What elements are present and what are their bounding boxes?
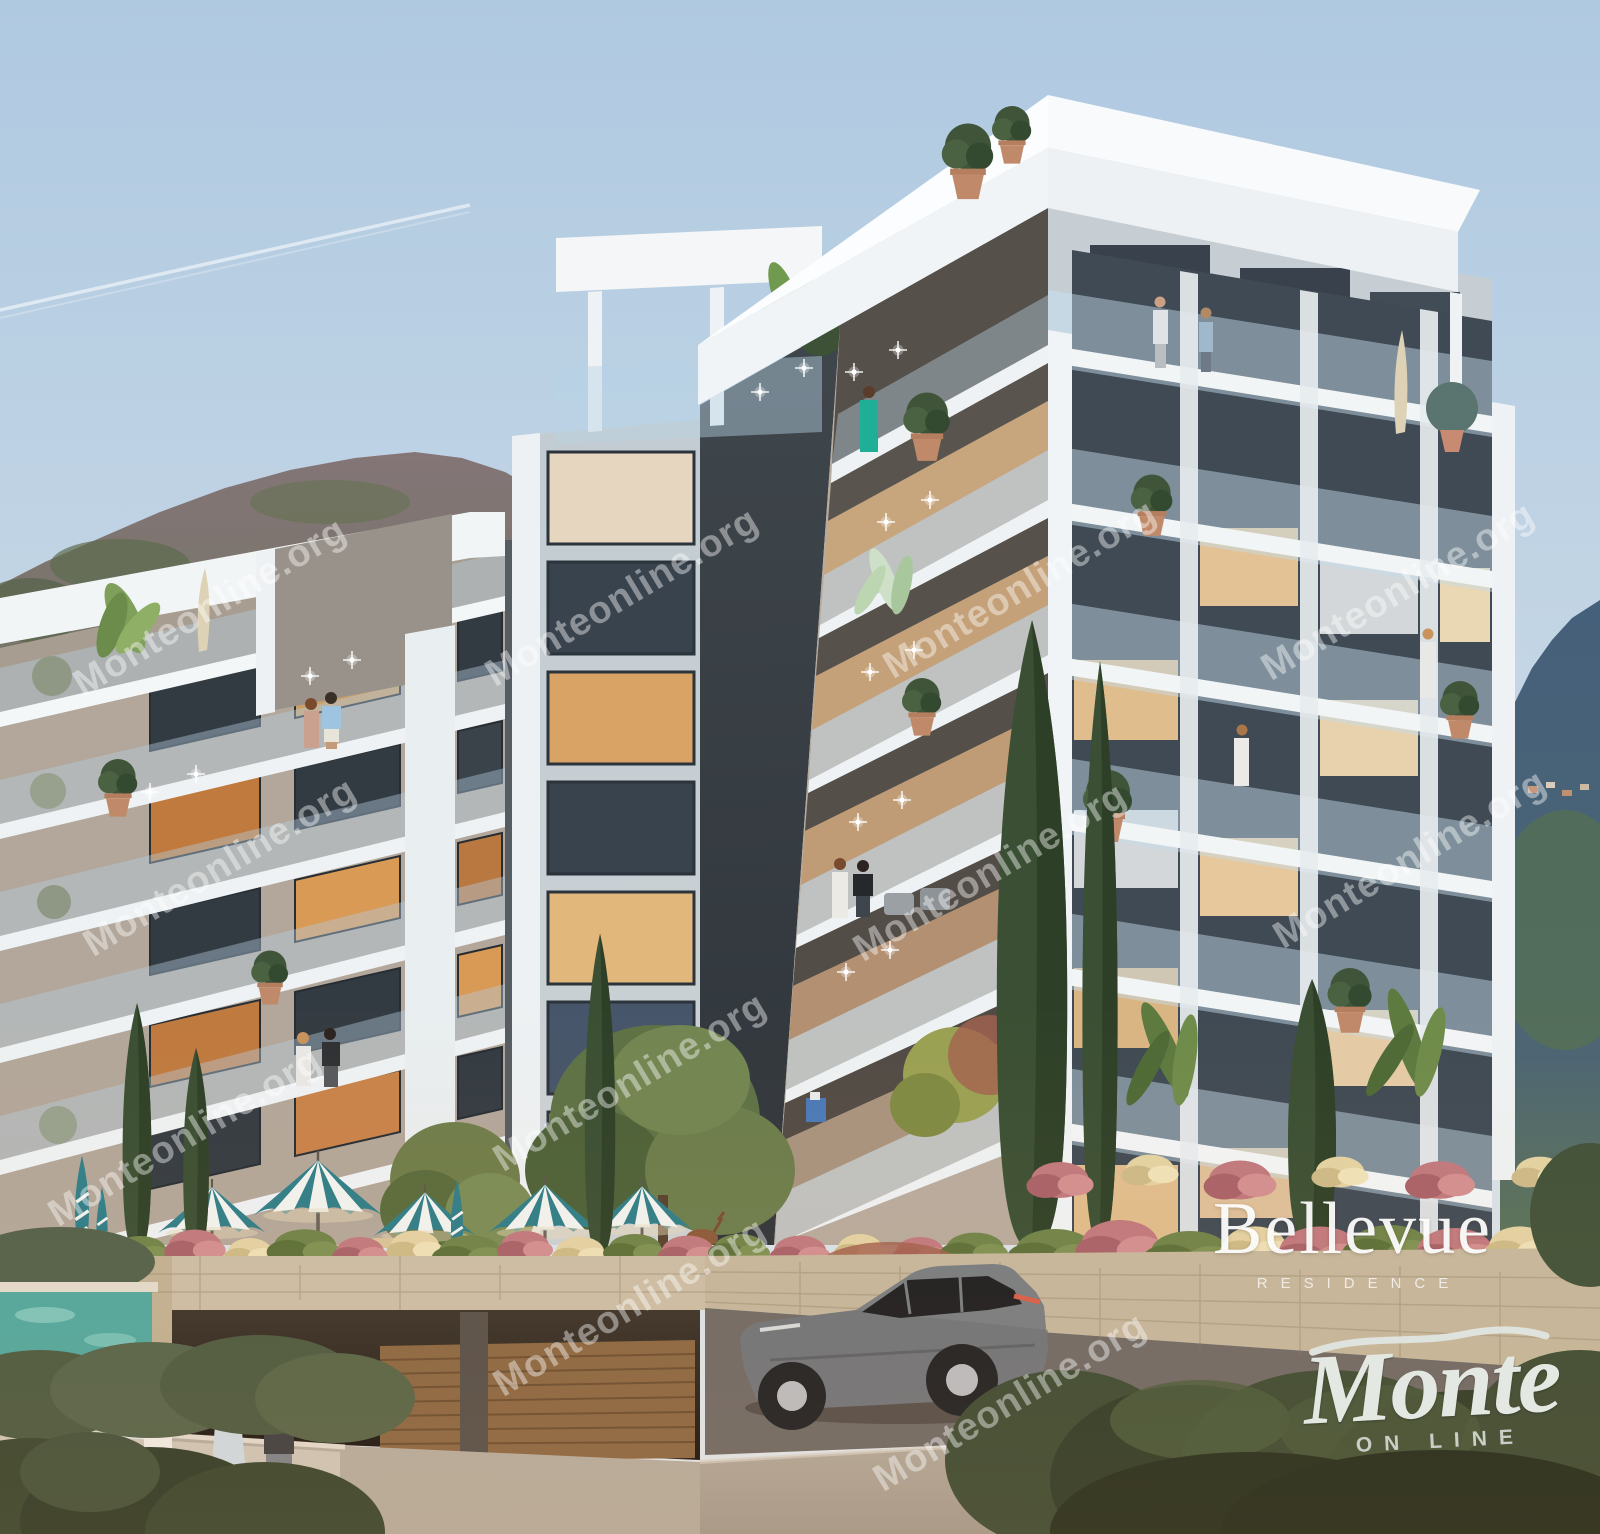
residence-name: Bellevue xyxy=(1180,1192,1525,1266)
residence-subtitle: RESIDENCE xyxy=(1180,1275,1525,1292)
residence-logo: Bellevue RESIDENCE xyxy=(1180,1192,1525,1292)
rendering-canvas: Monteonline.org Monteonline.org Monteonl… xyxy=(0,0,1600,1534)
publisher-logo: Monte ON LINE xyxy=(1269,1330,1595,1463)
scene-illustration xyxy=(0,0,1600,1534)
